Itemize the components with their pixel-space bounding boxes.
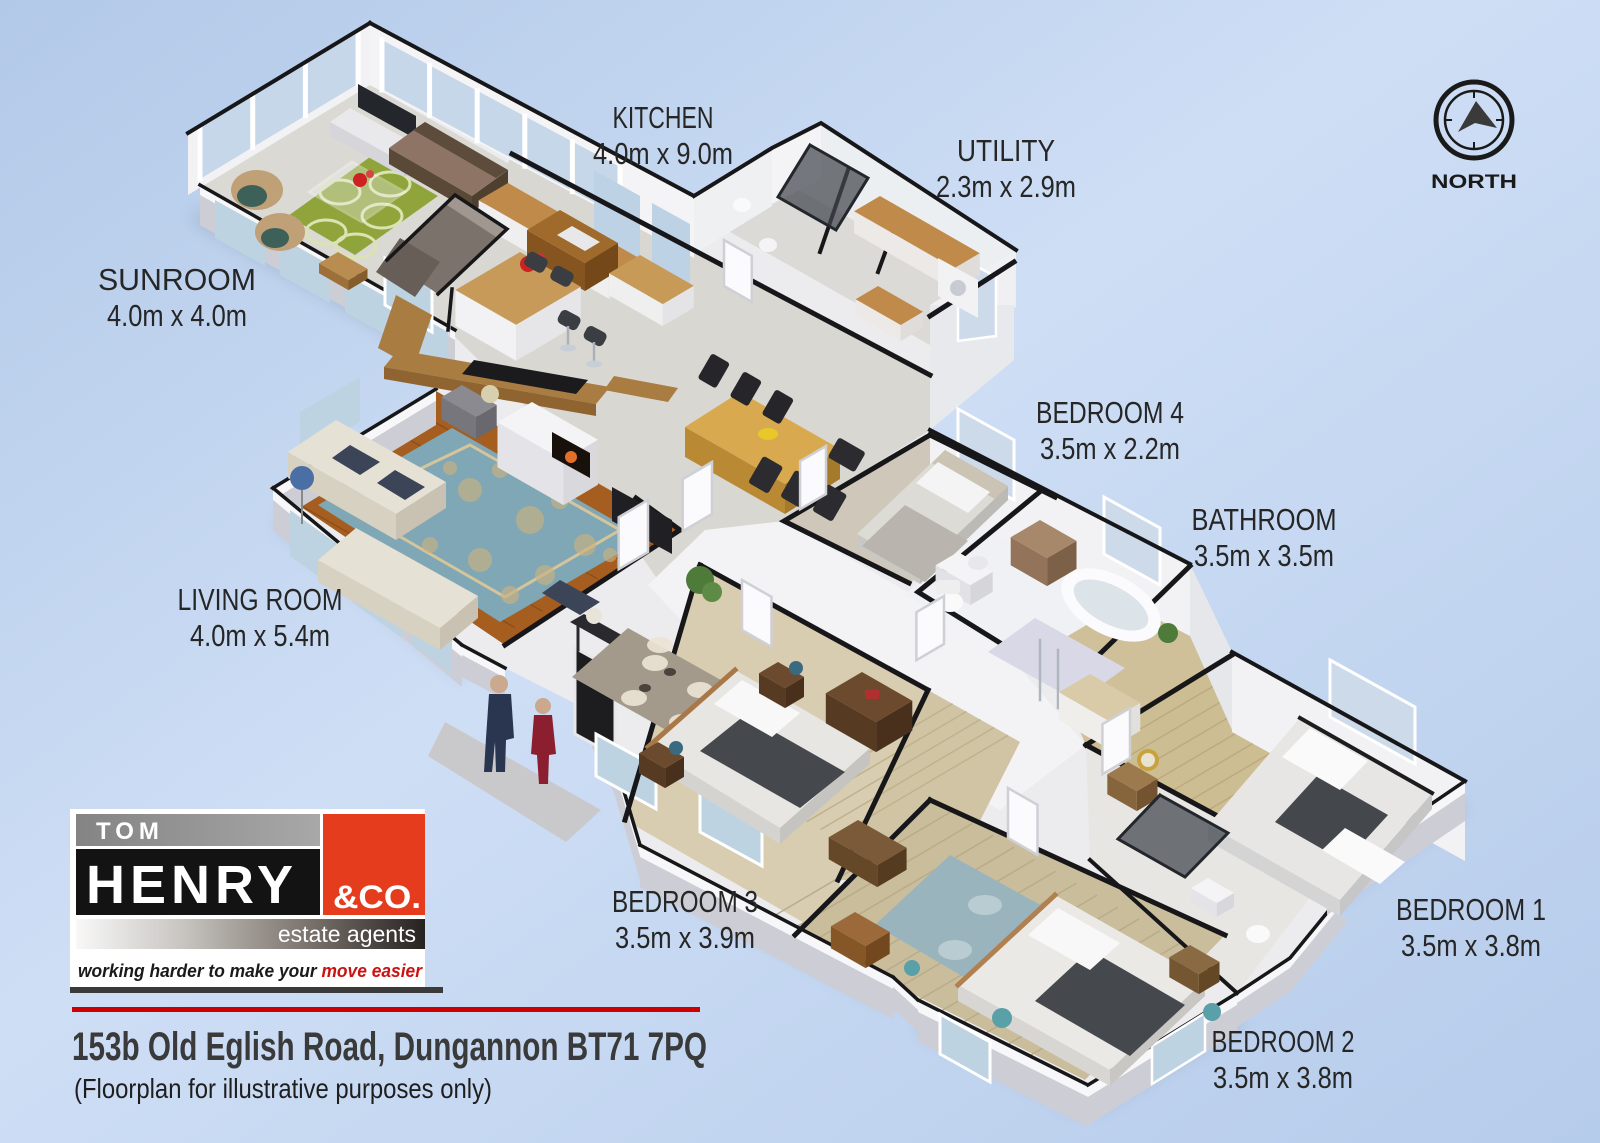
svg-text:3.5m x 2.2m: 3.5m x 2.2m (1040, 431, 1180, 466)
svg-text:3.5m x 3.8m: 3.5m x 3.8m (1401, 928, 1541, 963)
svg-text:4.0m x 9.0m: 4.0m x 9.0m (593, 136, 733, 171)
svg-text:HENRY: HENRY (86, 855, 298, 915)
svg-text:3.5m x 3.9m: 3.5m x 3.9m (615, 920, 755, 955)
svg-text:153b Old Eglish Road, Dunganno: 153b Old Eglish Road, Dungannon BT71 7PQ (72, 1025, 707, 1069)
svg-text:SUNROOM: SUNROOM (98, 262, 256, 297)
svg-text:BATHROOM: BATHROOM (1192, 502, 1337, 537)
svg-text:4.0m x 5.4m: 4.0m x 5.4m (190, 618, 330, 653)
svg-text:working harder to make your mo: working harder to make your move easier (78, 961, 423, 981)
svg-text:3.5m x 3.8m: 3.5m x 3.8m (1213, 1060, 1353, 1095)
svg-text:2.3m x 2.9m: 2.3m x 2.9m (936, 169, 1076, 204)
svg-text:estate agents: estate agents (278, 921, 416, 947)
svg-text:KITCHEN: KITCHEN (613, 100, 714, 135)
svg-text:LIVING ROOM: LIVING ROOM (178, 582, 343, 617)
svg-text:&CO.: &CO. (333, 879, 421, 915)
svg-text:3.5m x 3.5m: 3.5m x 3.5m (1194, 538, 1334, 573)
svg-text:NORTH: NORTH (1431, 172, 1517, 193)
svg-text:BEDROOM 4: BEDROOM 4 (1036, 395, 1184, 430)
svg-text:(Floorplan for illustrative pu: (Floorplan for illustrative purposes onl… (74, 1073, 492, 1104)
svg-text:BEDROOM 2: BEDROOM 2 (1212, 1024, 1355, 1059)
svg-text:TOM: TOM (96, 818, 164, 845)
svg-text:UTILITY: UTILITY (957, 133, 1055, 168)
svg-text:BEDROOM 3: BEDROOM 3 (612, 884, 758, 919)
svg-text:4.0m x 4.0m: 4.0m x 4.0m (107, 298, 247, 333)
svg-text:BEDROOM 1: BEDROOM 1 (1396, 892, 1546, 927)
